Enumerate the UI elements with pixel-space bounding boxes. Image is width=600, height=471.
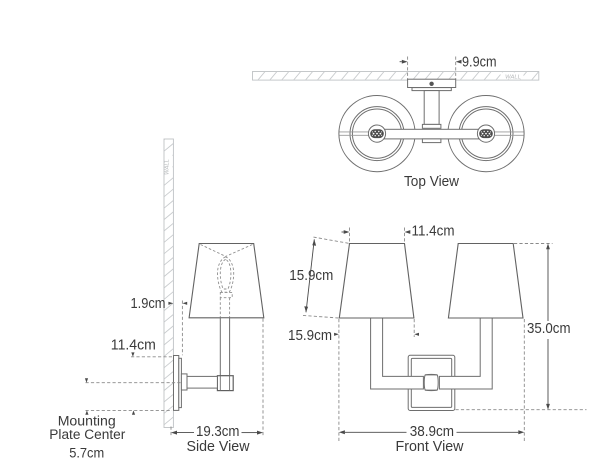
svg-text:WALL: WALL <box>505 74 521 80</box>
svg-text:1.9cm: 1.9cm <box>131 295 166 312</box>
svg-text:Plate Center: Plate Center <box>49 427 125 443</box>
svg-text:15.9cm: 15.9cm <box>289 267 333 284</box>
svg-text:15.9cm: 15.9cm <box>288 327 332 344</box>
svg-text:11.4cm: 11.4cm <box>111 337 156 354</box>
svg-text:Top View: Top View <box>404 173 459 190</box>
svg-text:35.0cm: 35.0cm <box>527 320 571 337</box>
svg-text:WALL: WALL <box>165 159 171 175</box>
svg-text:Side View: Side View <box>187 438 250 455</box>
svg-text:Front View: Front View <box>396 438 464 455</box>
svg-text:5.7cm: 5.7cm <box>69 446 104 462</box>
svg-text:11.4cm: 11.4cm <box>412 223 455 240</box>
svg-text:9.9cm: 9.9cm <box>462 54 497 71</box>
